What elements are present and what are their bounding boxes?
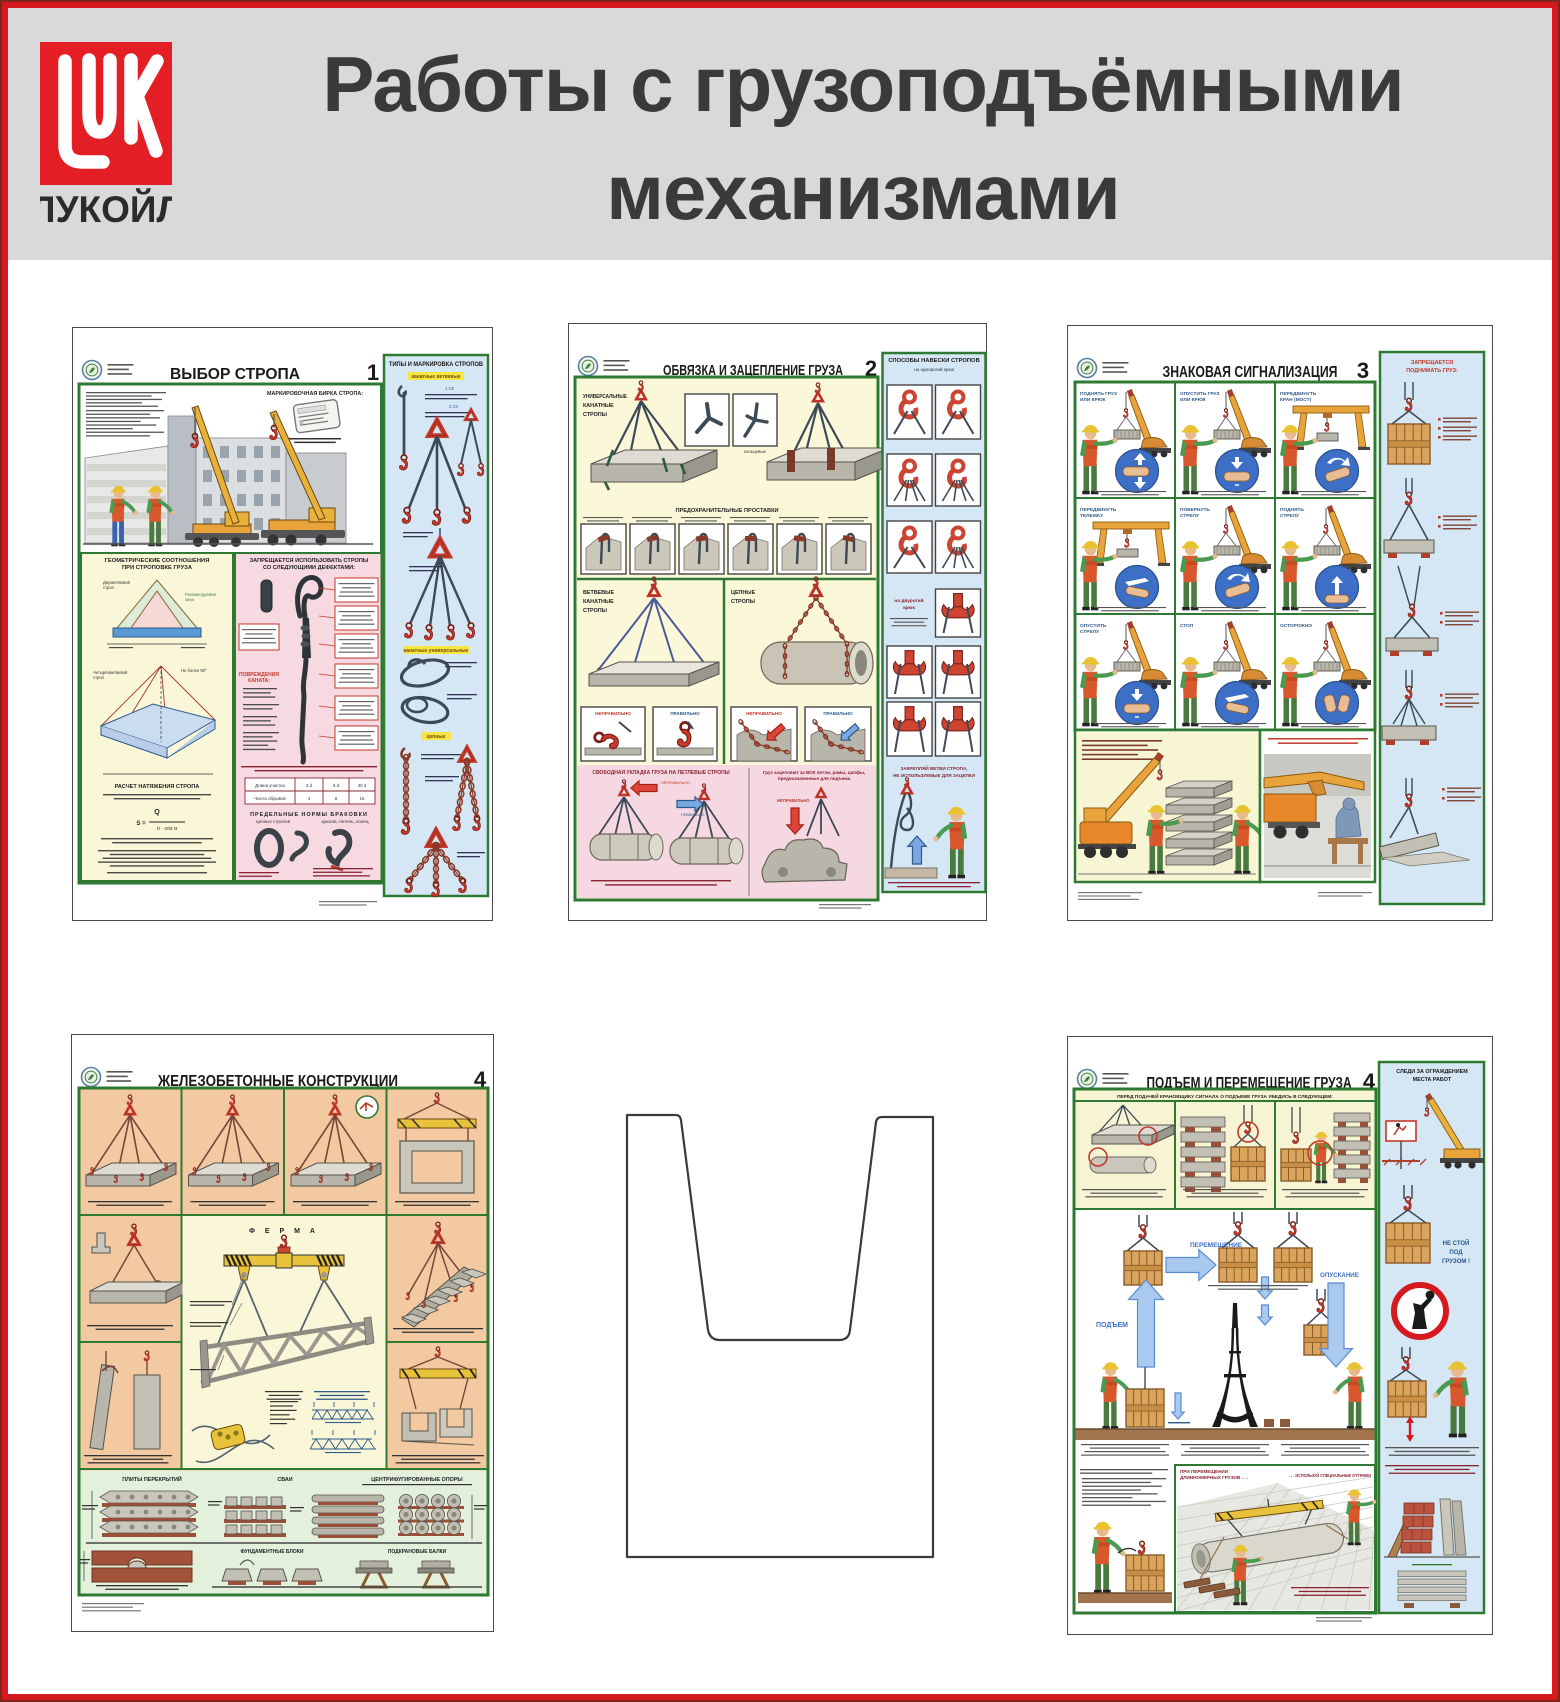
svg-text:НЕПРАВИЛЬНО: НЕПРАВИЛЬНО bbox=[777, 798, 810, 803]
svg-text:ЗАКРЕПЛЯЙ ВЕТВИ СТРОПА,: ЗАКРЕПЛЯЙ ВЕТВИ СТРОПА, bbox=[900, 764, 967, 771]
svg-text:ПОДНИМАТЬ ГРУЗ:: ПОДНИМАТЬ ГРУЗ: bbox=[1406, 368, 1458, 374]
svg-text:16: 16 bbox=[360, 796, 365, 801]
svg-text:ИЛИ КРЮК: ИЛИ КРЮК bbox=[1180, 397, 1206, 403]
svg-text:S =: S = bbox=[136, 821, 146, 827]
svg-text:КАНАТНЫЕ: КАНАТНЫЕ bbox=[583, 599, 614, 605]
svg-text:ПОДНЯТЬ ГРУЗ: ПОДНЯТЬ ГРУЗ bbox=[1080, 391, 1117, 397]
svg-text:ЦЕНТРИФУГИРОВАННЫЕ ОПОРЫ: ЦЕНТРИФУГИРОВАННЫЕ ОПОРЫ bbox=[371, 1477, 462, 1483]
svg-text:ПЕРЕМЕЩЕНИЕ: ПЕРЕМЕЩЕНИЕ bbox=[1190, 1242, 1243, 1249]
svg-text:6 d: 6 d bbox=[333, 783, 340, 788]
svg-text:УНИВЕРСАЛЬНЫЕ: УНИВЕРСАЛЬНЫЕ bbox=[583, 394, 627, 400]
svg-text:30 d: 30 d bbox=[358, 783, 367, 788]
svg-text:строп: строп bbox=[93, 675, 104, 680]
svg-text:ПРЕДЕЛЬНЫЕ НОРМЫ БРАКОВКИ: ПРЕДЕЛЬНЫЕ НОРМЫ БРАКОВКИ bbox=[250, 812, 368, 818]
svg-text:ПЛИТЫ ПЕРЕКРЫТИЙ: ПЛИТЫ ПЕРЕКРЫТИЙ bbox=[122, 1475, 182, 1483]
svg-text:Не более 90°: Не более 90° bbox=[181, 668, 207, 673]
svg-text:ЗАПРЕЩАЕТСЯ ИСПОЛЬЗОВАТЬ СТРОП: ЗАПРЕЩАЕТСЯ ИСПОЛЬЗОВАТЬ СТРОПЫ bbox=[250, 558, 369, 564]
svg-text:крюков, петель, колец: крюков, петель, колец bbox=[322, 819, 369, 824]
svg-text:цепные: цепные bbox=[427, 734, 446, 740]
svg-text:ЗАПРЕЩАЕТСЯ: ЗАПРЕЩАЕТСЯ bbox=[1411, 360, 1453, 366]
svg-text:n · cos α: n · cos α bbox=[157, 826, 177, 832]
svg-text:ИЛИ КРЮК: ИЛИ КРЮК bbox=[1080, 397, 1106, 403]
svg-text:СО СЛЕДУЮЩИМИ ДЕФЕКТАМИ:: СО СЛЕДУЮЩИМИ ДЕФЕКТАМИ: bbox=[263, 565, 355, 571]
svg-text:ОПУСТИТЬ ГРУЗ: ОПУСТИТЬ ГРУЗ bbox=[1180, 391, 1219, 397]
svg-text:СТРЕЛУ: СТРЕЛУ bbox=[1080, 629, 1100, 635]
svg-text:ПЕРЕДВИНУТЬ: ПЕРЕДВИНУТЬ bbox=[1080, 507, 1117, 513]
svg-text:ПОВЕРНУТЬ: ПОВЕРНУТЬ bbox=[1180, 507, 1210, 513]
svg-text:ПОД: ПОД bbox=[1449, 1250, 1463, 1256]
svg-text:зона: зона bbox=[185, 597, 195, 602]
svg-text:на двурогий: на двурогий bbox=[894, 597, 923, 604]
svg-text:ГРУЗОМ !: ГРУЗОМ ! bbox=[1442, 1259, 1470, 1265]
svg-text:ГЕОМЕТРИЧЕСКИЕ СООТНОШЕНИЯ: ГЕОМЕТРИЧЕСКИЕ СООТНОШЕНИЯ bbox=[105, 558, 210, 564]
svg-text:РАСЧЕТ НАТЯЖЕНИЯ СТРОПА: РАСЧЕТ НАТЯЖЕНИЯ СТРОПА bbox=[115, 784, 200, 790]
svg-text:СВАИ: СВАИ bbox=[277, 1477, 292, 1483]
svg-text:СТРОПЫ: СТРОПЫ bbox=[731, 599, 755, 605]
svg-text:крюк: крюк bbox=[903, 606, 915, 611]
svg-text:ПОДНЯТЬ: ПОДНЯТЬ bbox=[1280, 507, 1304, 513]
svg-text:Число обрывов: Число обрывов bbox=[254, 796, 286, 801]
svg-text:НЕ ИСПОЛЬЗУЕМЫЕ ДЛЯ ЗАЦЕПКИ: НЕ ИСПОЛЬЗУЕМЫЕ ДЛЯ ЗАЦЕПКИ bbox=[893, 773, 975, 778]
svg-text:СТРОПЫ: СТРОПЫ bbox=[583, 412, 607, 418]
svg-text:ПРИ ПЕРЕМЕЩЕНИИ: ПРИ ПЕРЕМЕЩЕНИИ bbox=[1180, 1469, 1228, 1474]
svg-text:ПЕРЕДВИНУТЬ: ПЕРЕДВИНУТЬ bbox=[1280, 391, 1317, 397]
svg-text:на однорогий крюк: на однорогий крюк bbox=[914, 366, 955, 372]
svg-text:СТРЕЛУ: СТРЕЛУ bbox=[1280, 513, 1300, 519]
svg-text:Груз зацепляют за ВСЕ петли, р: Груз зацепляют за ВСЕ петли, рамы, цапфы… bbox=[763, 769, 865, 775]
svg-text:СТРЕЛУ: СТРЕЛУ bbox=[1180, 513, 1200, 519]
svg-text:КРАН (МОСТ): КРАН (МОСТ) bbox=[1280, 397, 1312, 403]
svg-text:СВОБОДНАЯ УКЛАДКА ГРУЗА НА ПЕТ: СВОБОДНАЯ УКЛАДКА ГРУЗА НА ПЕТЛЕВЫЕ СТРО… bbox=[592, 770, 729, 776]
svg-text:ДЛИННОМЕРНЫХ ГРУЗОВ . . .: ДЛИННОМЕРНЫХ ГРУЗОВ . . . bbox=[1180, 1475, 1248, 1480]
svg-text:ПОДКРАНОВЫЕ БАЛКИ: ПОДКРАНОВЫЕ БАЛКИ bbox=[388, 1549, 447, 1555]
svg-text:КАНАТНЫЕ: КАНАТНЫЕ bbox=[583, 403, 614, 409]
svg-text:ЛУКОЙЛ: ЛУКОЙЛ bbox=[40, 188, 172, 228]
svg-text:МАРКИРОВОЧНАЯ БИРКА СТРОПА:: МАРКИРОВОЧНАЯ БИРКА СТРОПА: bbox=[267, 391, 363, 397]
svg-text:ПРАВИЛЬНО: ПРАВИЛЬНО bbox=[681, 813, 705, 817]
svg-text:канатные ветвевые: канатные ветвевые bbox=[411, 374, 460, 380]
svg-text:СТОП: СТОП bbox=[1180, 623, 1194, 629]
svg-text:СЛЕДИ ЗА ОГРАЖДЕНИЕМ: СЛЕДИ ЗА ОГРАЖДЕНИЕМ bbox=[1396, 1069, 1468, 1075]
svg-text:цепных стропов: цепных стропов bbox=[256, 819, 291, 824]
svg-text:ОПУСТИТЬ: ОПУСТИТЬ bbox=[1080, 623, 1107, 629]
svg-text:ТЕЛЕЖКУ: ТЕЛЕЖКУ bbox=[1080, 513, 1104, 519]
svg-text:Q: Q bbox=[154, 809, 160, 816]
svg-text:1: 1 bbox=[367, 360, 379, 385]
svg-text:ПРАВИЛЬНО: ПРАВИЛЬНО bbox=[823, 711, 853, 716]
svg-text:ПРИ СТРОПОВКЕ ГРУЗА: ПРИ СТРОПОВКЕ ГРУЗА bbox=[122, 565, 193, 571]
svg-text:Длина участка: Длина участка bbox=[255, 783, 285, 788]
svg-text:НЕПРАВИЛЬНО: НЕПРАВИЛЬНО bbox=[661, 781, 690, 785]
svg-text:НЕ СТОЙ: НЕ СТОЙ bbox=[1443, 1239, 1470, 1247]
svg-text:НЕПРАВИЛЬНО: НЕПРАВИЛЬНО bbox=[595, 711, 631, 716]
svg-text:ОСТОРОЖНО: ОСТОРОЖНО bbox=[1280, 623, 1312, 629]
svg-text:. . . ИСПОЛЬЗУЙ СПЕЦИАЛЬНЫЕ ОТ: . . . ИСПОЛЬЗУЙ СПЕЦИАЛЬНЫЕ ОТТЯЖКИ bbox=[1289, 1471, 1371, 1478]
svg-text:ВЫБОР СТРОПА: ВЫБОР СТРОПА bbox=[170, 366, 300, 383]
svg-text:ВЕТВЕВЫЕ: ВЕТВЕВЫЕ bbox=[583, 590, 614, 596]
svg-text:ПРАВИЛЬНО: ПРАВИЛЬНО bbox=[670, 711, 700, 716]
svg-text:ФУНДАМЕНТНЫЕ БЛОКИ: ФУНДАМЕНТНЫЕ БЛОКИ bbox=[241, 1549, 304, 1555]
svg-text:ЦЕПНЫЕ: ЦЕПНЫЕ bbox=[731, 590, 756, 596]
svg-text:Ф Е Р М А: Ф Е Р М А bbox=[249, 1228, 319, 1235]
svg-text:3: 3 bbox=[1357, 358, 1369, 383]
svg-text:СТРОПЫ: СТРОПЫ bbox=[583, 608, 607, 614]
svg-text:кольцевые: кольцевые bbox=[744, 449, 767, 454]
svg-text:ОПУСКАНИЕ: ОПУСКАНИЕ bbox=[1320, 1272, 1359, 1279]
svg-text:ЗНАКОВАЯ СИГНАЛИЗАЦИЯ: ЗНАКОВАЯ СИГНАЛИЗАЦИЯ bbox=[1163, 364, 1338, 381]
svg-text:2 СК: 2 СК bbox=[449, 404, 459, 409]
svg-text:предназначенные для подъема: предназначенные для подъема bbox=[778, 776, 851, 781]
svg-text:канатные универсальные: канатные универсальные bbox=[404, 648, 469, 654]
svg-text:строп: строп bbox=[103, 585, 114, 590]
svg-text:НЕПРАВИЛЬНО: НЕПРАВИЛЬНО bbox=[746, 711, 782, 716]
svg-text:1 СК: 1 СК bbox=[445, 386, 455, 391]
svg-text:ПРЕДОХРАНИТЕЛЬНЫЕ ПРОСТАВКИ: ПРЕДОХРАНИТЕЛЬНЫЕ ПРОСТАВКИ bbox=[675, 508, 778, 514]
svg-text:СПОСОБЫ НАВЕСКИ СТРОПОВ: СПОСОБЫ НАВЕСКИ СТРОПОВ bbox=[888, 358, 980, 364]
svg-text:КАНАТА:: КАНАТА: bbox=[248, 678, 270, 684]
svg-text:МЕСТА РАБОТ: МЕСТА РАБОТ bbox=[1413, 1077, 1452, 1083]
svg-text:ТИПЫ И МАРКИРОВКА СТРОПОВ: ТИПЫ И МАРКИРОВКА СТРОПОВ bbox=[389, 362, 484, 368]
svg-text:ПОДЪЕМ: ПОДЪЕМ bbox=[1096, 1322, 1128, 1329]
svg-text:3 d: 3 d bbox=[306, 783, 313, 788]
